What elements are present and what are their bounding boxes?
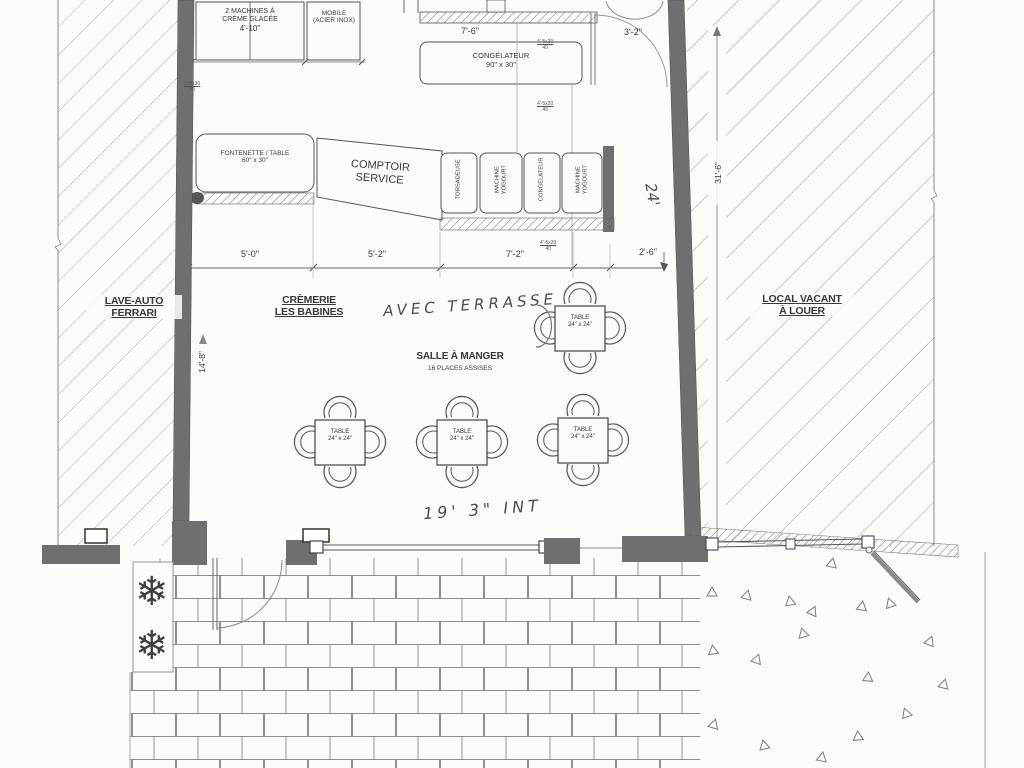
small-dim-mark: 4'-5x2040 xyxy=(537,40,553,52)
table-label: TABLE24" x 24" xyxy=(437,429,487,443)
label-zone-lave-auto: LAVE-AUTO FERRARI xyxy=(86,295,182,319)
plant-icon: ❄ xyxy=(135,626,169,666)
plant-icon: ❄ xyxy=(135,572,169,612)
label-zone-local-vacant: LOCAL VACANT À LOUER xyxy=(750,293,854,317)
handwritten-24: 24' xyxy=(641,182,662,208)
dim-3-2: 3'-2" xyxy=(603,27,663,37)
equip-ice-cream-label: 2 MACHINES À CRÈME GLACÉE 4'-10" xyxy=(198,8,302,33)
walls xyxy=(172,0,701,565)
equip-mobile-label: MOBILE (ACIER INOX) xyxy=(309,10,359,25)
equip-torsadeuse-label: TORSADEUSE xyxy=(456,149,463,209)
equip-congelateur-label: CONGÉLATEUR 90" x 30" xyxy=(440,52,562,69)
small-dim-mark: 4'-5x2040 xyxy=(540,241,556,253)
gravel-triangles xyxy=(707,557,950,762)
dim-5-2: 5'-2" xyxy=(347,249,407,259)
table-label: TABLE24" x 24" xyxy=(315,429,365,443)
dim-14-8: 14'-8" xyxy=(198,332,208,392)
label-places-assises: 16 PLACES ASSISES xyxy=(400,365,520,372)
small-dim-mark: 1'-5x3040 xyxy=(184,82,200,94)
dim-5-0: 5'-0" xyxy=(220,249,280,259)
label-zone-cremerie: CRÈMERIE LES BABINES xyxy=(263,294,355,318)
equip-machine-yogourt-2-label: MACHINEYOGOURT xyxy=(575,150,588,210)
dim-7-2: 7'-2" xyxy=(485,249,545,259)
dim-7-6: 7'-6" xyxy=(440,26,500,36)
equip-fontenette-label: FONTENETTE / TABLE 60" x 30" xyxy=(200,150,310,165)
floor-plan-scan: ❄ ❄ 2 MACHINES À CRÈME GLACÉE 4'-10" MOB… xyxy=(0,0,1024,768)
dim-31-6: 31'-6" xyxy=(714,141,724,205)
table-label: TABLE24" x 24" xyxy=(555,315,605,329)
equip-congelateur-2-label: CONGÉLATEUR xyxy=(539,149,546,209)
dim-2-6: 2'-6" xyxy=(618,247,678,257)
patio-bricks xyxy=(130,558,700,768)
table-label: TABLE24" x 24" xyxy=(558,427,608,441)
label-salle-a-manger: SALLE À MANGER xyxy=(400,351,520,363)
small-dim-mark: 4'-5x2040 xyxy=(537,102,553,114)
equip-machine-yogourt-1-label: MACHINEYOGOURT xyxy=(494,150,507,210)
